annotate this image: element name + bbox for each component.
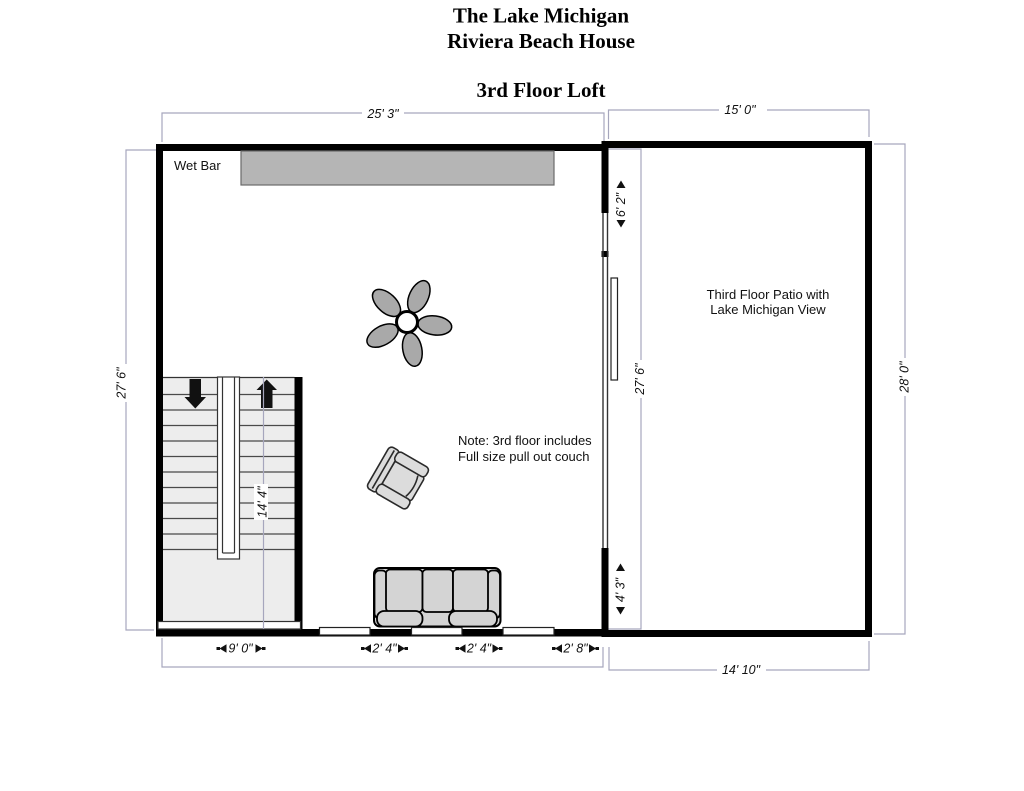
svg-text:4' 3": 4' 3" xyxy=(614,577,628,602)
svg-text:Full size pull out couch: Full size pull out couch xyxy=(458,449,590,464)
svg-text:14' 10": 14' 10" xyxy=(722,663,761,677)
svg-text:3rd Floor Loft: 3rd Floor Loft xyxy=(476,78,605,102)
svg-text:Third Floor Patio with: Third Floor Patio with xyxy=(707,287,830,302)
svg-text:28' 0": 28' 0" xyxy=(898,361,912,394)
svg-text:The Lake Michigan: The Lake Michigan xyxy=(453,4,630,28)
svg-text:9' 0": 9' 0" xyxy=(228,642,253,656)
svg-text:25' 3": 25' 3" xyxy=(366,107,399,121)
svg-text:2' 8": 2' 8" xyxy=(562,642,588,656)
svg-text:27' 6": 27' 6" xyxy=(115,367,129,400)
svg-text:Note: 3rd floor includes: Note: 3rd floor includes xyxy=(458,433,592,448)
svg-text:6' 2": 6' 2" xyxy=(614,192,628,217)
svg-text:14' 4": 14' 4" xyxy=(256,486,270,518)
svg-text:2' 4": 2' 4" xyxy=(466,642,492,656)
svg-text:2' 4": 2' 4" xyxy=(371,642,397,656)
svg-text:Riviera Beach House: Riviera Beach House xyxy=(447,29,635,53)
svg-text:Wet Bar: Wet Bar xyxy=(174,158,221,173)
svg-text:15' 0": 15' 0" xyxy=(724,103,756,117)
svg-text:Lake Michigan View: Lake Michigan View xyxy=(710,302,826,317)
svg-text:27' 6": 27' 6" xyxy=(633,363,647,396)
